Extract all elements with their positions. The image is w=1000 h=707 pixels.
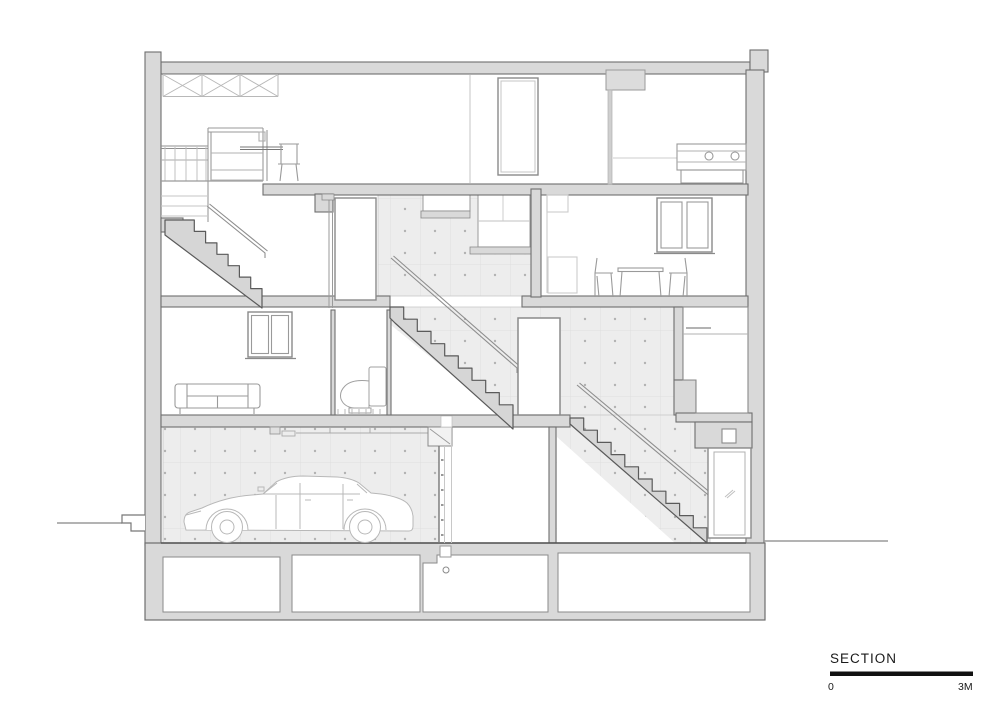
wall-niche xyxy=(423,193,470,211)
desk-lamp xyxy=(259,132,265,141)
door-leaf-1f xyxy=(518,318,560,415)
dining-room xyxy=(547,195,715,297)
dining-cabinet xyxy=(548,257,577,293)
right-parapet xyxy=(750,50,768,72)
chair-right-lines xyxy=(669,258,687,297)
closet-wall-step xyxy=(674,380,696,415)
loft-beam xyxy=(606,70,645,184)
dining-chair-left xyxy=(595,258,613,297)
window-frame xyxy=(657,198,712,252)
bathroom-left-wall xyxy=(331,310,335,415)
left-curb-step xyxy=(122,515,145,531)
garage-ceiling-box xyxy=(270,427,280,434)
closet-wall-upper xyxy=(674,307,683,380)
concrete-walls xyxy=(163,192,710,543)
foundation-drain-mark xyxy=(443,567,449,573)
sofa xyxy=(175,384,260,414)
desk-surface xyxy=(240,147,283,150)
upper-flight-lines xyxy=(161,196,207,216)
beam-wall xyxy=(608,90,612,184)
wardrobe-door-3f xyxy=(498,78,538,175)
car-wheel-rear xyxy=(350,512,381,543)
table-top xyxy=(618,268,663,272)
desk-chair xyxy=(278,144,300,181)
third-floor-slab xyxy=(263,184,748,195)
recess-floor xyxy=(470,247,533,254)
roof-truss xyxy=(163,75,278,97)
dining-window xyxy=(654,198,715,254)
dining-table xyxy=(618,268,663,297)
closet-floor-band xyxy=(676,413,752,422)
living-room xyxy=(175,312,296,414)
slab-shutter-notch xyxy=(441,416,452,427)
loft-desk-unit xyxy=(208,128,283,222)
sofa-legs xyxy=(180,408,254,414)
guard-top-rail xyxy=(161,146,208,149)
desk-unit-shelves xyxy=(211,153,263,180)
storage-recess xyxy=(478,192,530,247)
scale-start-label: 0 xyxy=(828,681,834,693)
title-block: SECTION 0 3M xyxy=(828,651,973,693)
door-leaf-2f xyxy=(335,198,376,300)
window-frame-1f xyxy=(248,312,292,357)
shutter-guide-ticks xyxy=(441,460,444,535)
bed-frame xyxy=(677,144,746,170)
section-drawing-page: SECTION 0 3M xyxy=(0,0,1000,707)
roof-slab xyxy=(161,62,750,74)
dining-partition-wall xyxy=(531,189,541,297)
door-track-lines xyxy=(329,196,333,308)
foundation-void-1 xyxy=(163,557,280,612)
entry-meter-box xyxy=(722,429,736,443)
storage-right-wall xyxy=(549,427,556,543)
chair-left-lines xyxy=(595,258,613,297)
bed-base xyxy=(681,170,743,183)
foundation xyxy=(145,543,765,620)
left-wall xyxy=(145,52,161,545)
guard-posts xyxy=(165,147,206,181)
foundation-void-2 xyxy=(292,555,420,612)
bathroom xyxy=(338,367,386,414)
truss-diagonals xyxy=(163,75,278,97)
dining-chair-right xyxy=(669,258,687,297)
scale-end-label: 3M xyxy=(958,681,973,693)
car-wheel-front xyxy=(212,512,243,543)
scale-bar xyxy=(830,672,973,677)
section-drawing: SECTION 0 3M xyxy=(0,0,1000,707)
sofa-arms-seat xyxy=(187,384,248,408)
desk-unit-frame xyxy=(208,128,267,222)
dropped-beam xyxy=(606,70,645,90)
door-3f-outer xyxy=(498,78,538,175)
chair-seat-legs xyxy=(278,164,300,181)
living-window xyxy=(245,312,296,359)
second-floor-slab-right xyxy=(522,296,748,307)
bathroom-floor-ticks xyxy=(338,409,380,414)
foundation-void-4 xyxy=(558,553,750,612)
bed xyxy=(613,144,746,183)
foundation-void-3 xyxy=(423,555,548,612)
door-track-bracket xyxy=(322,194,334,200)
stair-2f-to-3f xyxy=(165,220,262,308)
niche-sill xyxy=(421,211,470,218)
drawing-title: SECTION xyxy=(830,651,897,666)
garage-door-pit xyxy=(440,546,451,557)
toilet-tank xyxy=(369,367,386,406)
dining-bulkhead xyxy=(547,195,568,212)
toilet-bowl xyxy=(341,381,370,408)
table-legs xyxy=(620,272,661,298)
bathroom-right-wall xyxy=(387,310,391,415)
